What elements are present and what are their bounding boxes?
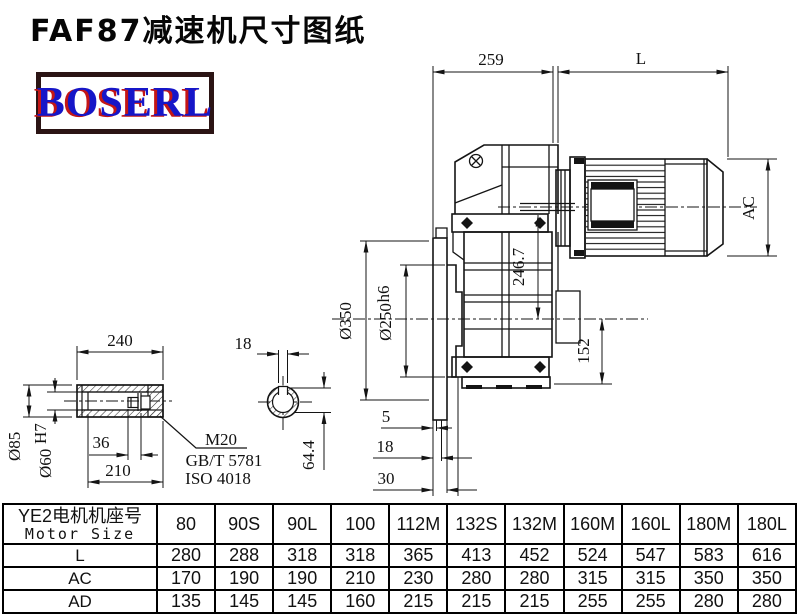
table-row-AD: AD135145145160215215215255255280280	[3, 590, 796, 613]
cell-AC-90S: 190	[215, 567, 273, 590]
table-header-row: YE2电机机座号 Motor Size 8090S90L100112M132S1…	[3, 504, 796, 544]
dim-label-259: 259	[478, 50, 504, 69]
bolt-note-m20: M20	[205, 430, 237, 449]
cell-L-132S: 413	[447, 544, 505, 567]
row-label-AD: AD	[3, 590, 157, 613]
motor-size-table: YE2电机机座号 Motor Size 8090S90L100112M132S1…	[2, 503, 797, 614]
table-header-en: Motor Size	[4, 526, 156, 543]
cell-AC-180L: 350	[738, 567, 796, 590]
dim-label-d60: Ø60	[36, 449, 55, 478]
cell-L-180L: 616	[738, 544, 796, 567]
col-header-132M: 132M	[505, 504, 563, 544]
dim-label-keyway-18: 18	[235, 334, 252, 353]
cell-AD-112M: 215	[389, 590, 447, 613]
retaining-bolt	[128, 393, 150, 411]
cell-AD-90L: 145	[273, 590, 331, 613]
dim-label-210: 210	[105, 461, 131, 480]
dim-label-5: 5	[382, 407, 391, 426]
row-label-L: L	[3, 544, 157, 567]
bolt-diamond-icon	[534, 361, 546, 373]
bolt-diamond-icon	[461, 217, 473, 229]
cell-L-90S: 288	[215, 544, 273, 567]
cell-AD-132S: 215	[447, 590, 505, 613]
cell-L-160M: 524	[564, 544, 622, 567]
output-flange-outline	[433, 228, 464, 420]
dim-label-L: L	[636, 49, 646, 68]
col-header-90L: 90L	[273, 504, 331, 544]
shaft-view: M20 GB/T 5781 ISO 4018 240 Ø85 Ø60 H7	[5, 331, 262, 488]
table-header-motor-size: YE2电机机座号 Motor Size	[3, 504, 157, 544]
col-header-180L: 180L	[738, 504, 796, 544]
dim-label-AC: AC	[739, 196, 758, 220]
cell-AD-80: 135	[157, 590, 215, 613]
cell-AC-160M: 315	[564, 567, 622, 590]
col-header-90S: 90S	[215, 504, 273, 544]
bolt-diamond-icon	[461, 361, 473, 373]
col-header-132S: 132S	[447, 504, 505, 544]
bolt-note-iso: ISO 4018	[185, 469, 251, 488]
cell-AD-100: 160	[331, 590, 389, 613]
col-header-160L: 160L	[622, 504, 680, 544]
bolt-note-gbt: GB/T 5781	[186, 451, 263, 470]
cell-L-100: 318	[331, 544, 389, 567]
cell-AC-180M: 350	[680, 567, 738, 590]
dim-label-152: 152	[574, 338, 593, 364]
cell-AC-112M: 230	[389, 567, 447, 590]
dim-label-246-7: 246.7	[509, 247, 528, 286]
technical-drawing: 259 L AC Ø350 Ø250 h6 246.7 152	[0, 0, 800, 503]
col-header-112M: 112M	[389, 504, 447, 544]
table-row-AC: AC170190190210230280280315315350350	[3, 567, 796, 590]
table-header-cn: YE2电机机座号	[4, 506, 156, 526]
col-header-160M: 160M	[564, 504, 622, 544]
main-view: 259 L AC Ø350 Ø250 h6 246.7 152	[332, 49, 777, 496]
bolt-diamond-icon	[534, 217, 546, 229]
dim-label-64-4: 64.4	[299, 440, 318, 470]
cell-AD-160L: 255	[622, 590, 680, 613]
cell-L-132M: 452	[505, 544, 563, 567]
cell-AC-132M: 280	[505, 567, 563, 590]
col-header-180M: 180M	[680, 504, 738, 544]
dim-label-36: 36	[93, 433, 110, 452]
dim-label-d85: Ø85	[5, 432, 24, 461]
cell-AC-90L: 190	[273, 567, 331, 590]
dim-label-30: 30	[378, 469, 395, 488]
cell-L-160L: 547	[622, 544, 680, 567]
col-header-100: 100	[331, 504, 389, 544]
dim-label-d350: Ø350	[336, 302, 355, 340]
cell-L-80: 280	[157, 544, 215, 567]
cell-L-112M: 365	[389, 544, 447, 567]
cell-AC-80: 170	[157, 567, 215, 590]
col-header-80: 80	[157, 504, 215, 544]
motor-nameplate	[588, 180, 637, 230]
cell-AD-90S: 145	[215, 590, 273, 613]
main-view-dimensions: 259 L AC Ø350 Ø250 h6 246.7 152	[336, 49, 777, 496]
cell-AD-132M: 215	[505, 590, 563, 613]
row-label-AC: AC	[3, 567, 157, 590]
cell-AD-160M: 255	[564, 590, 622, 613]
cell-AD-180M: 280	[680, 590, 738, 613]
cell-AC-100: 210	[331, 567, 389, 590]
cell-AC-160L: 315	[622, 567, 680, 590]
table-row-L: L280288318318365413452524547583616	[3, 544, 796, 567]
cell-L-180M: 583	[680, 544, 738, 567]
dim-label-240: 240	[107, 331, 133, 350]
dim-label-18: 18	[377, 437, 394, 456]
cell-L-90L: 318	[273, 544, 331, 567]
dim-label-d250: Ø250	[376, 303, 395, 341]
cell-AD-180L: 280	[738, 590, 796, 613]
section-view: 18 64.4	[235, 334, 332, 470]
lifting-eye-icon	[470, 155, 483, 168]
cell-AC-132S: 280	[447, 567, 505, 590]
dim-label-d250-tol: h6	[374, 286, 393, 303]
dim-label-d60-tol: H7	[31, 423, 50, 444]
